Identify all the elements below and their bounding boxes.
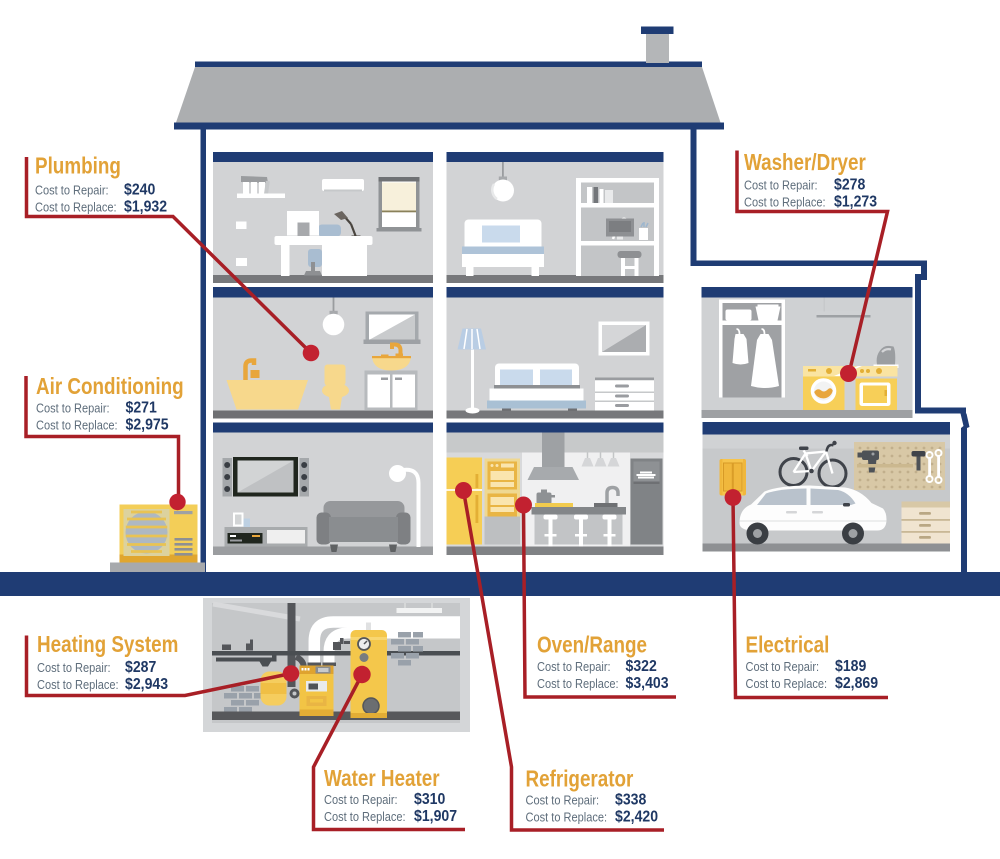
svg-text:Cost to Repair:: Cost to Repair: — [36, 401, 110, 416]
svg-text:Cost to Repair:: Cost to Repair: — [746, 659, 820, 674]
svg-text:Cost to Replace:: Cost to Replace: — [537, 676, 619, 691]
svg-text:Electrical: Electrical — [746, 633, 830, 658]
svg-text:Cost to Replace:: Cost to Replace: — [36, 418, 118, 433]
svg-text:Cost to Replace:: Cost to Replace: — [526, 810, 608, 825]
svg-text:Cost to Repair:: Cost to Repair: — [526, 793, 600, 808]
svg-text:Cost to Replace:: Cost to Replace: — [37, 677, 119, 692]
svg-text:$310: $310 — [414, 790, 445, 808]
svg-text:Cost to Repair:: Cost to Repair: — [37, 660, 111, 675]
svg-text:$338: $338 — [615, 791, 646, 809]
svg-text:Cost to Repair:: Cost to Repair: — [324, 792, 398, 807]
svg-text:$1,273: $1,273 — [834, 193, 877, 211]
svg-text:Cost to Replace:: Cost to Replace: — [35, 200, 117, 215]
svg-text:Cost to Replace:: Cost to Replace: — [744, 195, 826, 210]
svg-text:$271: $271 — [126, 399, 157, 417]
svg-text:$3,403: $3,403 — [626, 674, 669, 692]
svg-text:$1,932: $1,932 — [124, 198, 167, 216]
svg-text:$189: $189 — [835, 657, 866, 675]
svg-text:Oven/Range: Oven/Range — [537, 633, 647, 658]
svg-text:Air Conditioning: Air Conditioning — [36, 374, 184, 399]
svg-text:Heating System: Heating System — [37, 632, 178, 657]
svg-text:$2,869: $2,869 — [835, 674, 878, 692]
svg-text:Refrigerator: Refrigerator — [526, 767, 634, 792]
svg-text:$322: $322 — [626, 657, 657, 675]
svg-text:$2,943: $2,943 — [125, 675, 168, 693]
svg-text:$2,975: $2,975 — [126, 416, 169, 434]
svg-text:Water Heater: Water Heater — [324, 766, 440, 791]
svg-text:$2,420: $2,420 — [615, 808, 658, 826]
svg-text:Cost to Repair:: Cost to Repair: — [744, 178, 818, 193]
svg-text:Cost to Repair:: Cost to Repair: — [35, 183, 109, 198]
svg-text:$287: $287 — [125, 658, 156, 676]
svg-text:Cost to Replace:: Cost to Replace: — [324, 809, 406, 824]
svg-text:Cost to Replace:: Cost to Replace: — [746, 676, 828, 691]
svg-text:Cost to Repair:: Cost to Repair: — [537, 659, 611, 674]
svg-text:$1,907: $1,907 — [414, 807, 457, 825]
svg-text:$240: $240 — [124, 181, 155, 199]
svg-text:Washer/Dryer: Washer/Dryer — [744, 150, 866, 175]
svg-text:Plumbing: Plumbing — [35, 154, 121, 179]
svg-text:$278: $278 — [834, 176, 865, 194]
